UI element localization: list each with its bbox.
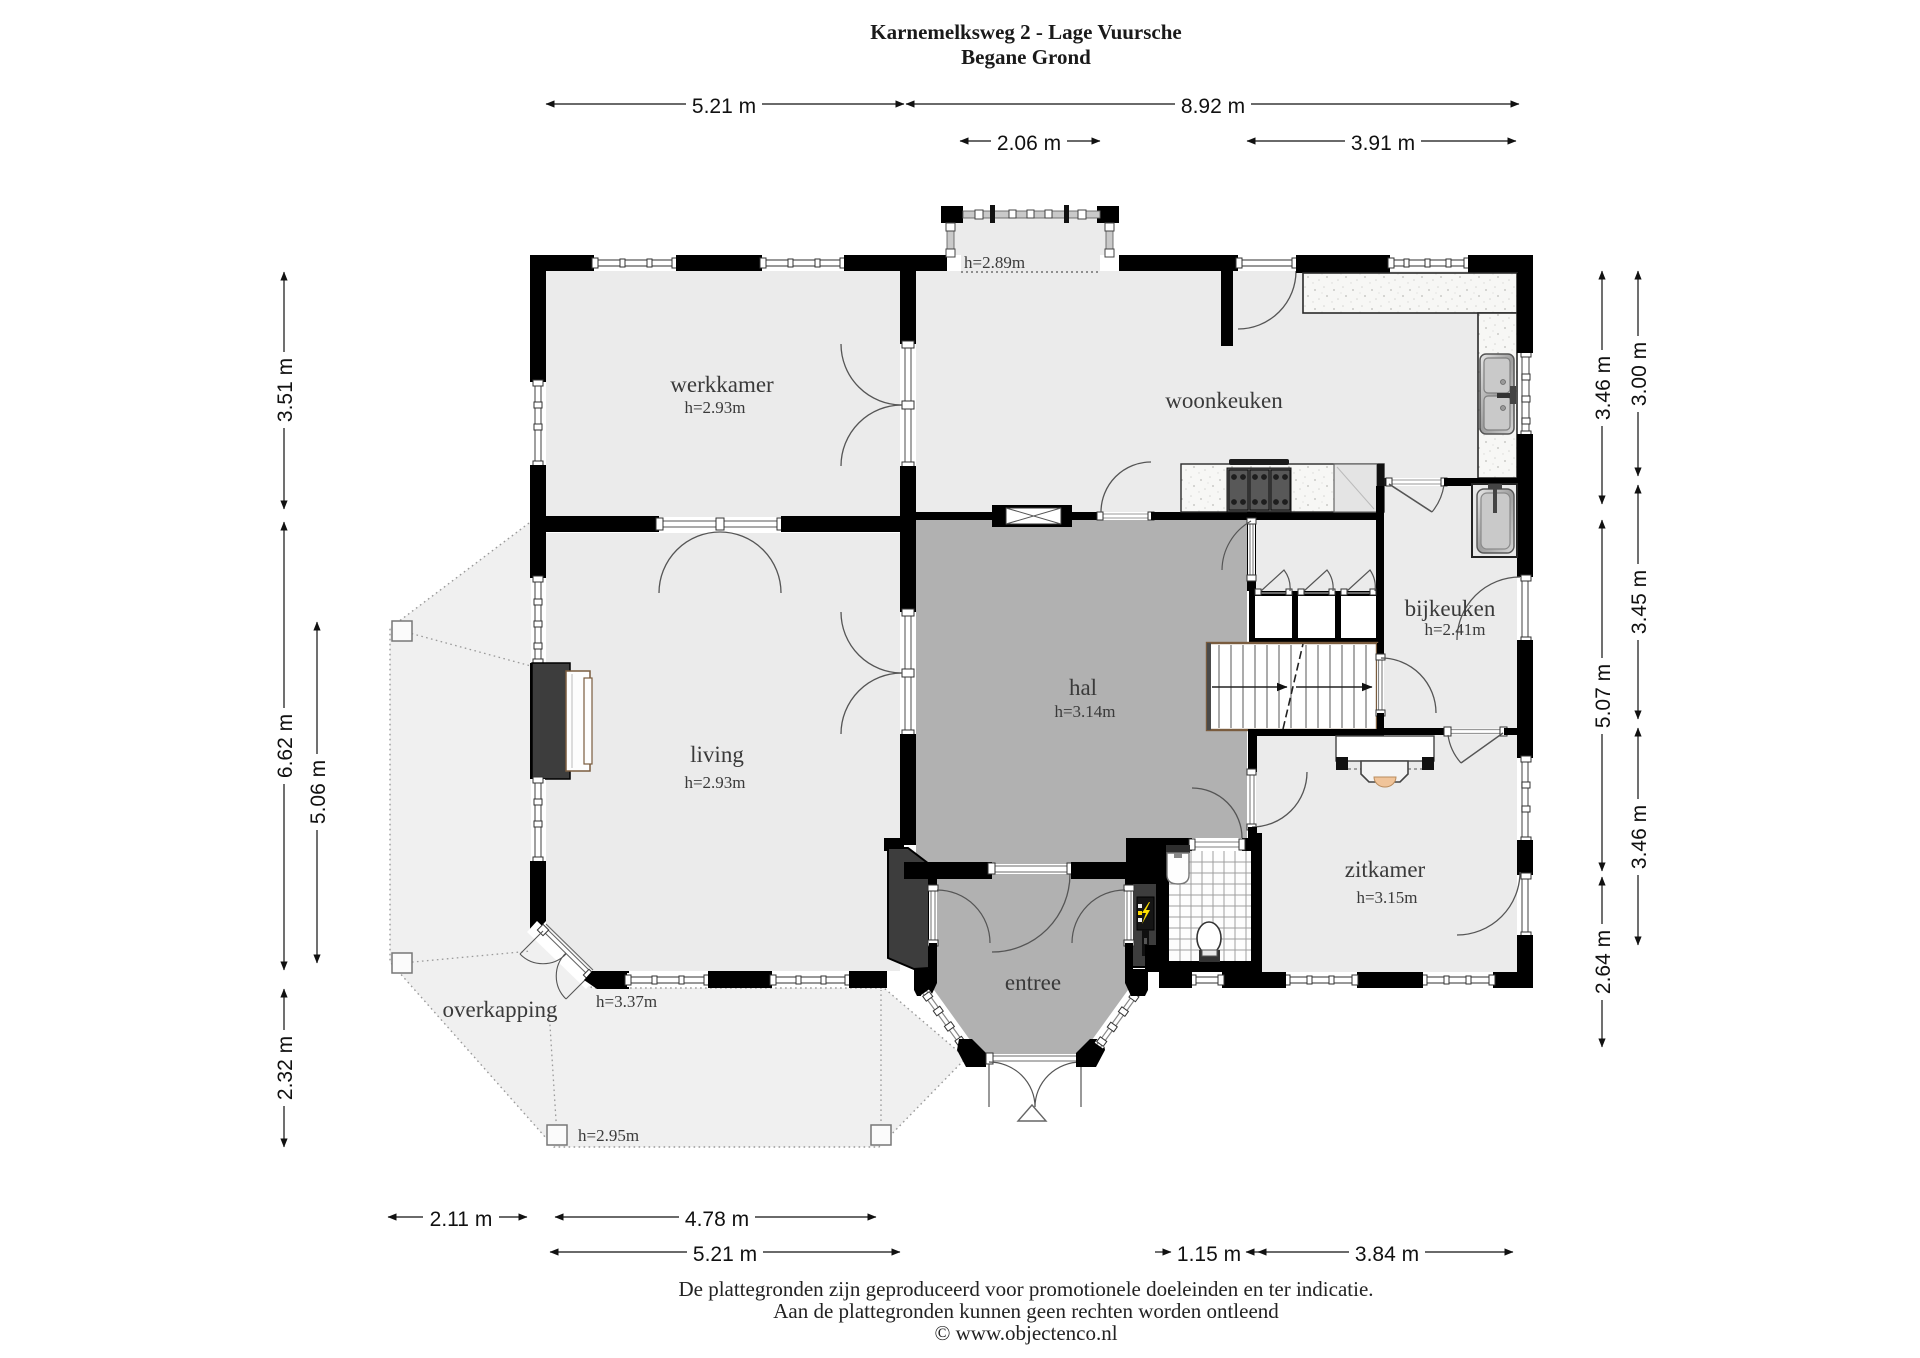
svg-text:3.91 m: 3.91 m [1351,132,1415,155]
svg-text:h=2.93m: h=2.93m [684,398,745,417]
svg-text:h=2.41m: h=2.41m [1424,620,1485,639]
svg-text:2.06 m: 2.06 m [997,132,1061,155]
svg-text:h=2.95m: h=2.95m [578,1126,639,1145]
svg-text:3.45 m: 3.45 m [1628,570,1651,634]
svg-text:hal: hal [1069,675,1097,700]
svg-text:h=2.93m: h=2.93m [684,773,745,792]
svg-text:Begane Grond: Begane Grond [961,45,1091,69]
svg-text:3.46 m: 3.46 m [1628,805,1651,869]
svg-text:5.21 m: 5.21 m [693,1243,757,1266]
svg-text:h=2.89m: h=2.89m [964,253,1025,272]
svg-text:8.92 m: 8.92 m [1181,95,1245,118]
svg-text:2.11 m: 2.11 m [430,1208,493,1231]
svg-text:3.84 m: 3.84 m [1355,1243,1419,1266]
svg-text:Aan de plattegronden kunnen ge: Aan de plattegronden kunnen geen rechten… [773,1299,1279,1323]
svg-text:De plattegronden zijn geproduc: De plattegronden zijn geproduceerd voor … [678,1277,1373,1301]
svg-text:3.51 m: 3.51 m [274,358,297,422]
svg-text:h=3.15m: h=3.15m [1356,888,1417,907]
svg-text:bijkeuken: bijkeuken [1405,596,1496,621]
svg-text:overkapping: overkapping [443,997,558,1022]
svg-text:entree: entree [1005,970,1061,995]
svg-text:© www.objectenco.nl: © www.objectenco.nl [934,1321,1117,1345]
svg-text:6.62 m: 6.62 m [274,714,297,778]
svg-text:Karnemelksweg 2 - Lage Vuursch: Karnemelksweg 2 - Lage Vuursche [870,20,1182,44]
svg-text:h=3.14m: h=3.14m [1054,702,1115,721]
svg-text:2.32 m: 2.32 m [274,1036,297,1100]
svg-text:h=3.37m: h=3.37m [596,992,657,1011]
svg-text:5.21 m: 5.21 m [692,95,756,118]
svg-text:3.46 m: 3.46 m [1592,356,1615,420]
svg-text:1.15 m: 1.15 m [1177,1243,1241,1266]
svg-text:living: living [690,742,744,767]
svg-text:zitkamer: zitkamer [1345,857,1426,882]
svg-text:werkkamer: werkkamer [670,372,774,397]
svg-text:5.06 m: 5.06 m [307,760,330,824]
svg-text:2.64 m: 2.64 m [1592,930,1615,994]
svg-text:5.07 m: 5.07 m [1592,664,1615,728]
svg-text:woonkeuken: woonkeuken [1165,388,1283,413]
svg-text:3.00 m: 3.00 m [1628,342,1651,406]
svg-text:4.78 m: 4.78 m [685,1208,749,1231]
